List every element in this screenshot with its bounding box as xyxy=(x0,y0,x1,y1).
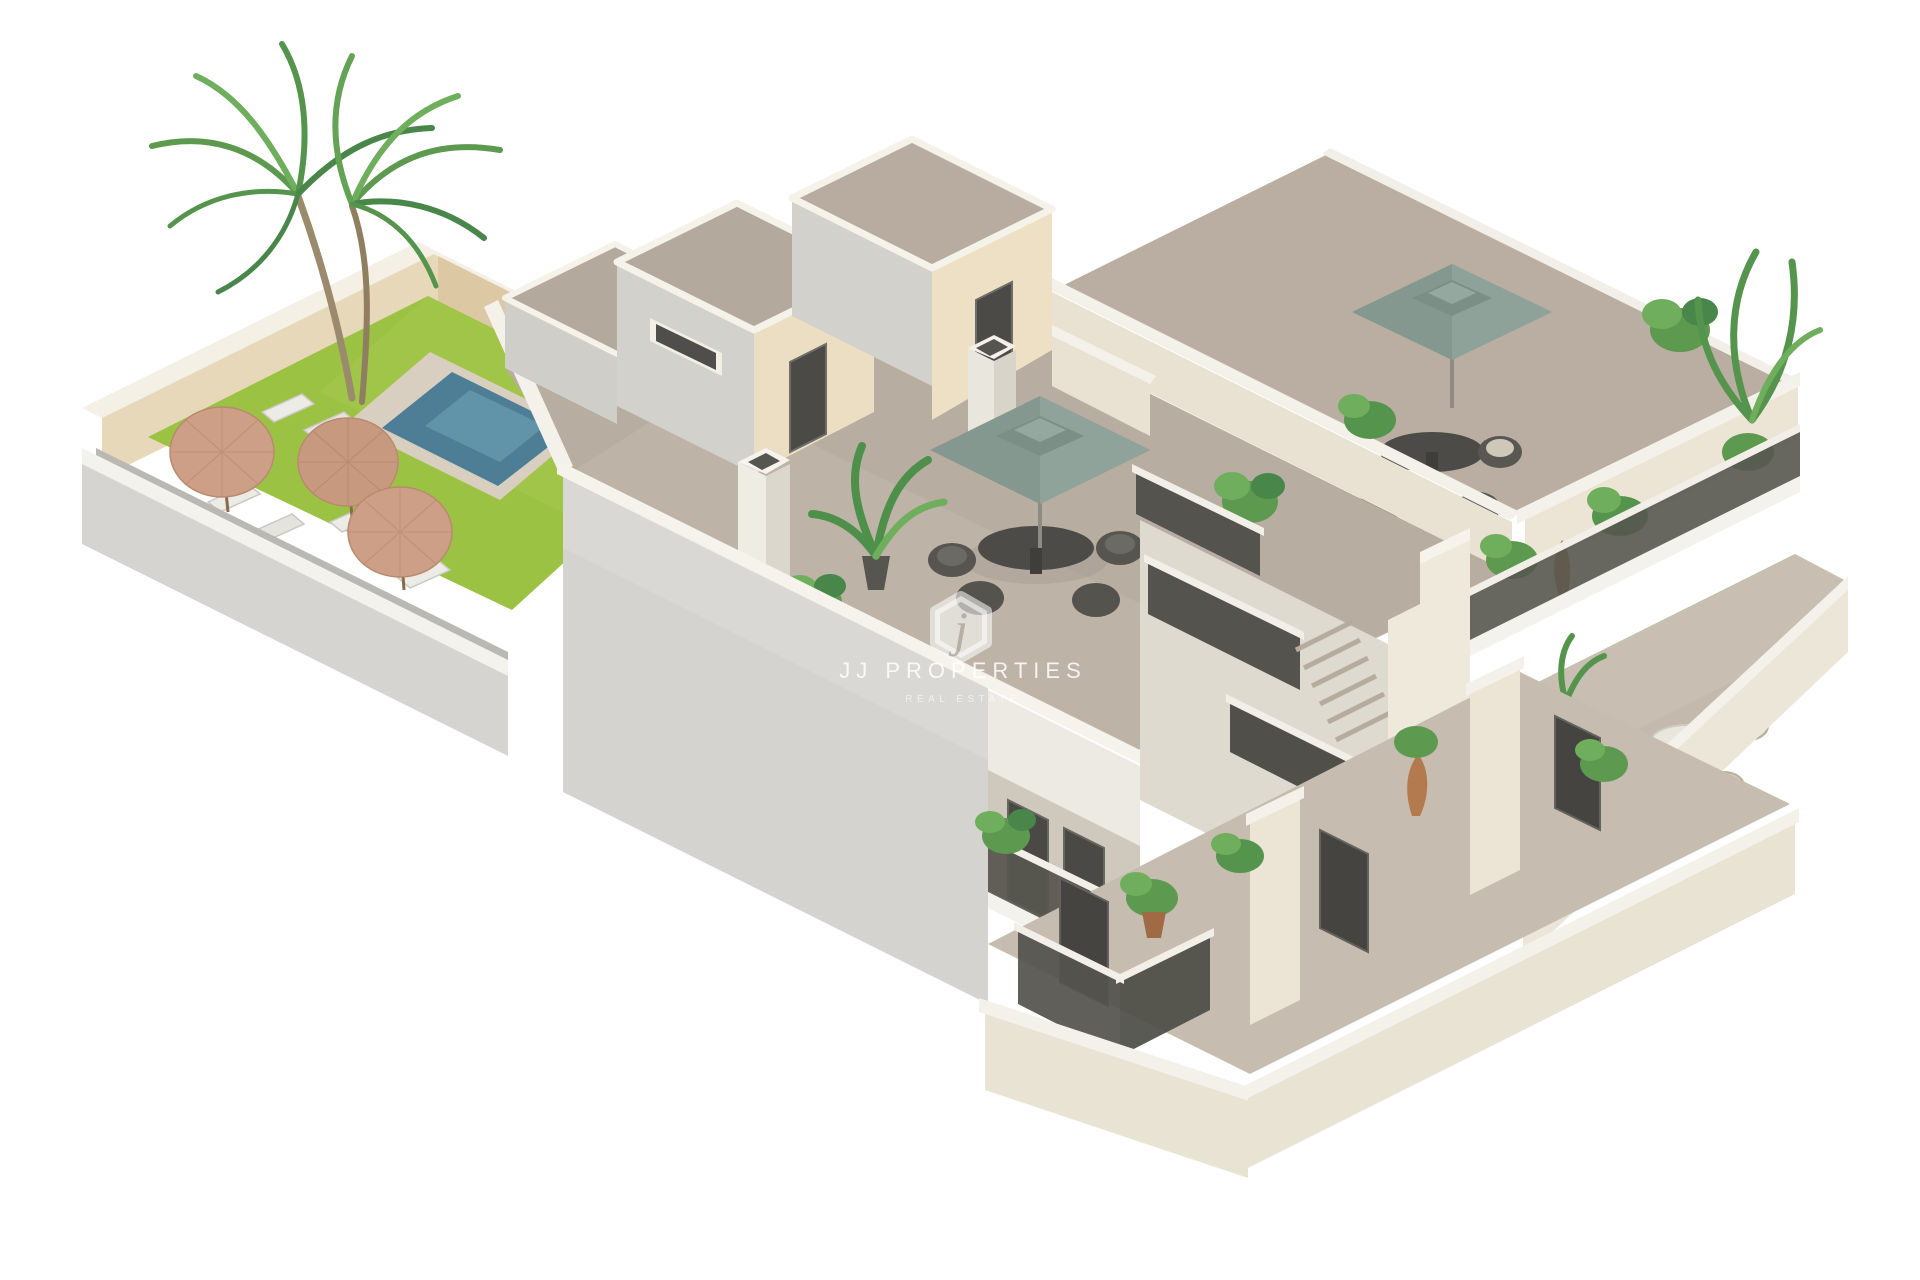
property-render: j JJ PROPERTIES REAL ESTATE xyxy=(0,0,1920,1280)
brand-name: JJ PROPERTIES xyxy=(839,658,1087,683)
roof-door xyxy=(790,344,826,452)
brand-tagline: REAL ESTATE xyxy=(905,694,1020,705)
